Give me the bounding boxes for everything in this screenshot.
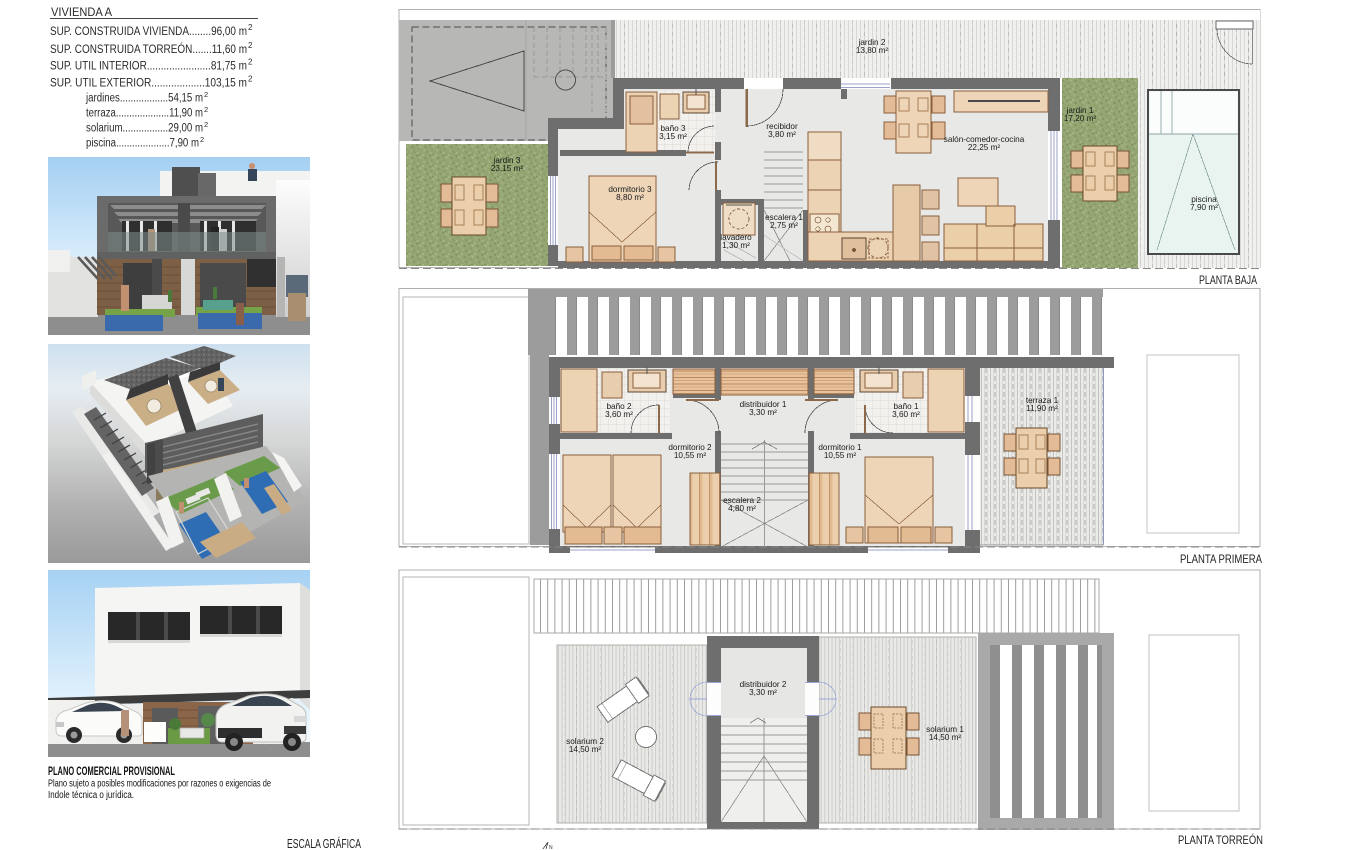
svg-text:8,80 m²: 8,80 m² — [616, 193, 644, 202]
svg-text:14,50 m²: 14,50 m² — [569, 745, 602, 754]
svg-text:10,55 m²: 10,55 m² — [674, 451, 707, 460]
svg-text:4,80 m²: 4,80 m² — [728, 504, 756, 513]
svg-text:ESCALA GRÁFICA: ESCALA GRÁFICA — [287, 836, 361, 850]
svg-text:10,55 m²: 10,55 m² — [824, 451, 857, 460]
svg-text:N: N — [549, 845, 553, 850]
svg-text:PLANTA BAJA: PLANTA BAJA — [1199, 273, 1257, 287]
svg-text:PLANTA TORREÓN: PLANTA TORREÓN — [1178, 832, 1263, 847]
svg-text:PLANTA PRIMERA: PLANTA PRIMERA — [1180, 552, 1262, 566]
svg-text:13,80 m²: 13,80 m² — [856, 46, 889, 55]
svg-text:7,90 m²: 7,90 m² — [1190, 203, 1218, 212]
svg-text:17,20 m²: 17,20 m² — [1064, 114, 1097, 123]
svg-text:14,50 m²: 14,50 m² — [929, 733, 962, 742]
svg-text:11,90 m²: 11,90 m² — [1026, 404, 1058, 413]
svg-text:3,60 m²: 3,60 m² — [605, 410, 633, 419]
svg-text:23,15 m²: 23,15 m² — [491, 164, 524, 173]
svg-text:3,30 m²: 3,30 m² — [749, 408, 777, 417]
svg-text:3,30 m²: 3,30 m² — [749, 688, 777, 697]
svg-text:3,15 m²: 3,15 m² — [659, 132, 687, 141]
svg-text:3,80 m²: 3,80 m² — [768, 130, 796, 139]
svg-text:1,30 m²: 1,30 m² — [722, 241, 750, 250]
svg-text:2,75 m²: 2,75 m² — [770, 221, 798, 230]
svg-text:22,25 m²: 22,25 m² — [968, 143, 1001, 152]
svg-text:3,60 m²: 3,60 m² — [892, 410, 920, 419]
